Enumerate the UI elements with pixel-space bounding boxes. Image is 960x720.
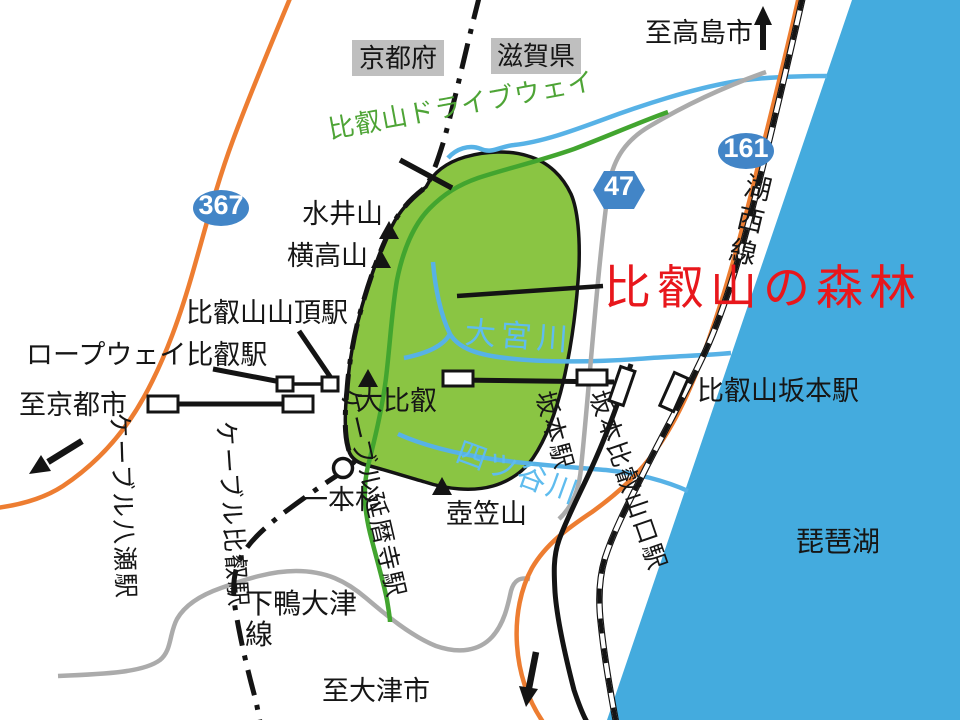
shimogamo-otsu-road-label-line2: 線 [245, 619, 357, 650]
ropeway-station-leader-line [213, 369, 281, 382]
hieizan-sancho-station-marker [322, 377, 338, 391]
route-367-road [0, 0, 291, 508]
sakamoto-station-marker [577, 370, 607, 385]
lake-biwa-area [607, 0, 960, 720]
arrow-head-down-left [29, 455, 51, 474]
lake-biwa-label: 琵琶湖 [796, 526, 880, 557]
ropeway-hiei-station-marker [277, 377, 293, 391]
shimogamo-otsu-road-label: 下鴨大津 線 [245, 588, 357, 650]
to-takashima-arrow [754, 6, 772, 50]
omiya-river-label: 大宮川 [464, 316, 574, 358]
shiga-prefecture-label: 滋賀県 [491, 38, 581, 74]
to-takashima-label: 至高島市 [645, 18, 753, 48]
tsubokasayama-label: 壺笠山 [446, 499, 527, 529]
ropeway-hiei-station-label: ロープウェイ比叡駅 [26, 340, 267, 370]
cable-yase-station-marker [148, 396, 178, 412]
arrow-shaft [48, 441, 82, 462]
cable-enryakuji-station-marker [443, 371, 473, 386]
sancho-station-leader-line [299, 331, 331, 378]
route-161-badge-number: 161 [718, 133, 774, 163]
daihiei-label: 大比叡 [356, 386, 437, 416]
arrow-shaft [529, 652, 536, 688]
ipponsugi-circle-marker [334, 459, 353, 478]
to-kyoto-arrow [29, 441, 82, 474]
route-47-badge-number: 47 [591, 171, 647, 201]
mizuiyama-label: 水井山 [302, 199, 383, 229]
arrow-head-up [754, 6, 772, 25]
hieizan-sakamoto-station-label: 比叡山坂本駅 [697, 376, 859, 406]
shimogamo-otsu-road-label-line1: 下鴨大津 [245, 588, 357, 619]
to-otsu-label: 至大津市 [322, 676, 430, 706]
yokotakayama-label: 横高山 [287, 241, 368, 271]
forest-title-label: 比叡山の森林 [604, 262, 922, 315]
arrow-head-down [519, 686, 538, 707]
ipponsugi-label: 一本杉 [301, 485, 382, 515]
route-367-badge-number: 367 [193, 190, 249, 220]
hieizan-area-map: 京都府 滋賀県 至高島市 至京都市 至大津市 比叡山ドライブウェイ 367 16… [0, 0, 960, 720]
cable-hiei-station-marker [283, 396, 313, 412]
hieizan-sancho-station-label: 比叡山山頂駅 [186, 298, 348, 328]
kyoto-prefecture-label: 京都府 [352, 40, 444, 76]
